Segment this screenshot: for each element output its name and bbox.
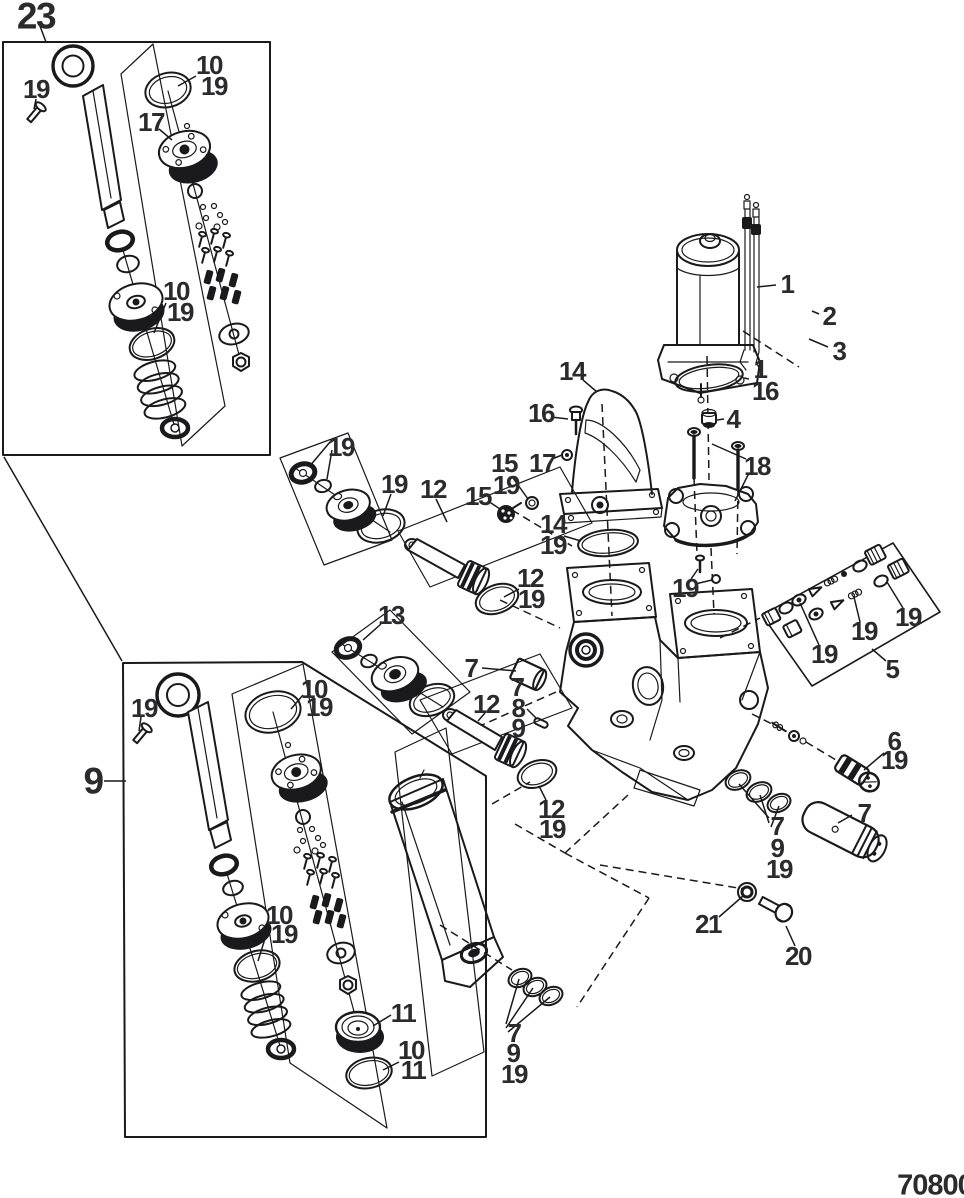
callout-label: 17 xyxy=(529,450,555,476)
drawing-number: 70800 xyxy=(897,1170,964,1198)
callout-label: 16 xyxy=(752,378,778,404)
callout-label: 18 xyxy=(744,453,770,479)
callout-label: 16 xyxy=(528,400,554,426)
callout-label: 19 xyxy=(851,618,877,644)
reservoir-cover xyxy=(560,389,662,523)
seal-washer xyxy=(562,450,572,460)
exploded-view-drawing xyxy=(0,0,964,1198)
washer xyxy=(325,940,357,967)
box-9-trim-cylinder-kit xyxy=(123,662,503,1137)
o-ring-set xyxy=(722,766,793,815)
coupler-fitting xyxy=(702,410,716,429)
callout-label: 19 xyxy=(540,532,566,558)
pump-bolt xyxy=(688,428,700,478)
callout-label: 19 xyxy=(167,299,193,325)
callout-label: 19 xyxy=(895,604,921,630)
callout-label: 19 xyxy=(271,921,297,947)
callout-label: 17 xyxy=(138,109,164,135)
pump-bolt xyxy=(732,442,744,488)
callout-label: 19 xyxy=(881,747,907,773)
manual-release-valve xyxy=(771,720,883,795)
pump-screw xyxy=(696,556,720,584)
small-ring xyxy=(222,879,245,898)
callout-label: 7 xyxy=(465,655,478,681)
nut xyxy=(340,976,356,994)
valve-screws xyxy=(196,228,234,266)
callout-label: 7 xyxy=(858,800,871,826)
callout-label: 19 xyxy=(131,695,157,721)
cylinder-end-cap xyxy=(798,797,892,866)
callout-label: 15 xyxy=(465,483,491,509)
callout-label: 3 xyxy=(833,338,846,364)
callout-label: 9 xyxy=(83,763,102,800)
valve-plugs xyxy=(309,892,346,928)
callout-label: 14 xyxy=(559,358,585,384)
o-ring xyxy=(674,360,745,395)
hydraulic-tubes xyxy=(740,195,761,371)
callout-label: 19 xyxy=(306,694,332,720)
valve-plugs xyxy=(203,267,241,304)
rod-seal xyxy=(105,229,135,253)
o-ring xyxy=(141,68,194,113)
callout-label: 19 xyxy=(493,472,519,498)
cylinder-rod xyxy=(157,674,231,848)
callout-label: 9 xyxy=(512,715,525,741)
o-ring xyxy=(343,1054,394,1093)
callout-label: 19 xyxy=(518,586,544,612)
o-ring-set xyxy=(506,965,566,1009)
cylinder-cap xyxy=(336,1012,384,1053)
callout-label: 4 xyxy=(727,406,740,432)
callout-label: 21 xyxy=(695,911,721,937)
bolt xyxy=(131,722,154,746)
pump-motor xyxy=(658,195,761,584)
callout-label: 12 xyxy=(473,691,499,717)
check-balls xyxy=(196,204,228,231)
valve-parts-row xyxy=(762,544,887,626)
spring xyxy=(132,357,187,423)
callout-label: 5 xyxy=(886,656,899,682)
rod-seal xyxy=(209,853,239,877)
parts-diagram-page: 2319101917101919191215191514161714191219… xyxy=(0,0,964,1198)
valve-parts-row xyxy=(783,558,910,638)
callout-label: 19 xyxy=(501,1061,527,1087)
manifold-body xyxy=(560,563,768,806)
callout-label: 19 xyxy=(811,641,837,667)
callout-label: 20 xyxy=(785,943,811,969)
connector-lines xyxy=(4,331,836,1007)
check-pin xyxy=(533,717,548,728)
valve-rod-assembly xyxy=(420,654,572,793)
nut xyxy=(233,353,249,371)
piston-valve-assembly xyxy=(268,748,332,808)
cup-washer xyxy=(268,1040,294,1058)
callout-label: 19 xyxy=(381,471,407,497)
callout-label: 19 xyxy=(23,76,49,102)
bolt xyxy=(25,101,48,125)
callout-label: 19 xyxy=(539,816,565,842)
callout-label: 2 xyxy=(823,303,836,329)
oil-pump xyxy=(664,484,758,546)
spring xyxy=(239,978,292,1041)
callout-label: 11 xyxy=(401,1057,426,1083)
callout-label: 12 xyxy=(420,476,446,502)
callout-label: 23 xyxy=(17,0,55,35)
callout-label: 1 xyxy=(781,271,794,297)
callout-label: 19 xyxy=(672,575,698,601)
valve-screws xyxy=(301,852,340,888)
cylinder-rod xyxy=(53,46,124,228)
anchor-bolt xyxy=(757,893,795,925)
cup-washer xyxy=(162,419,188,437)
callout-label: 11 xyxy=(391,1000,416,1026)
callout-label: 19 xyxy=(328,434,354,460)
o-ring xyxy=(577,527,639,558)
callout-label: 19 xyxy=(201,73,227,99)
callout-label: 19 xyxy=(766,856,792,882)
callout-label: 13 xyxy=(378,602,404,628)
small-ring xyxy=(115,253,140,274)
